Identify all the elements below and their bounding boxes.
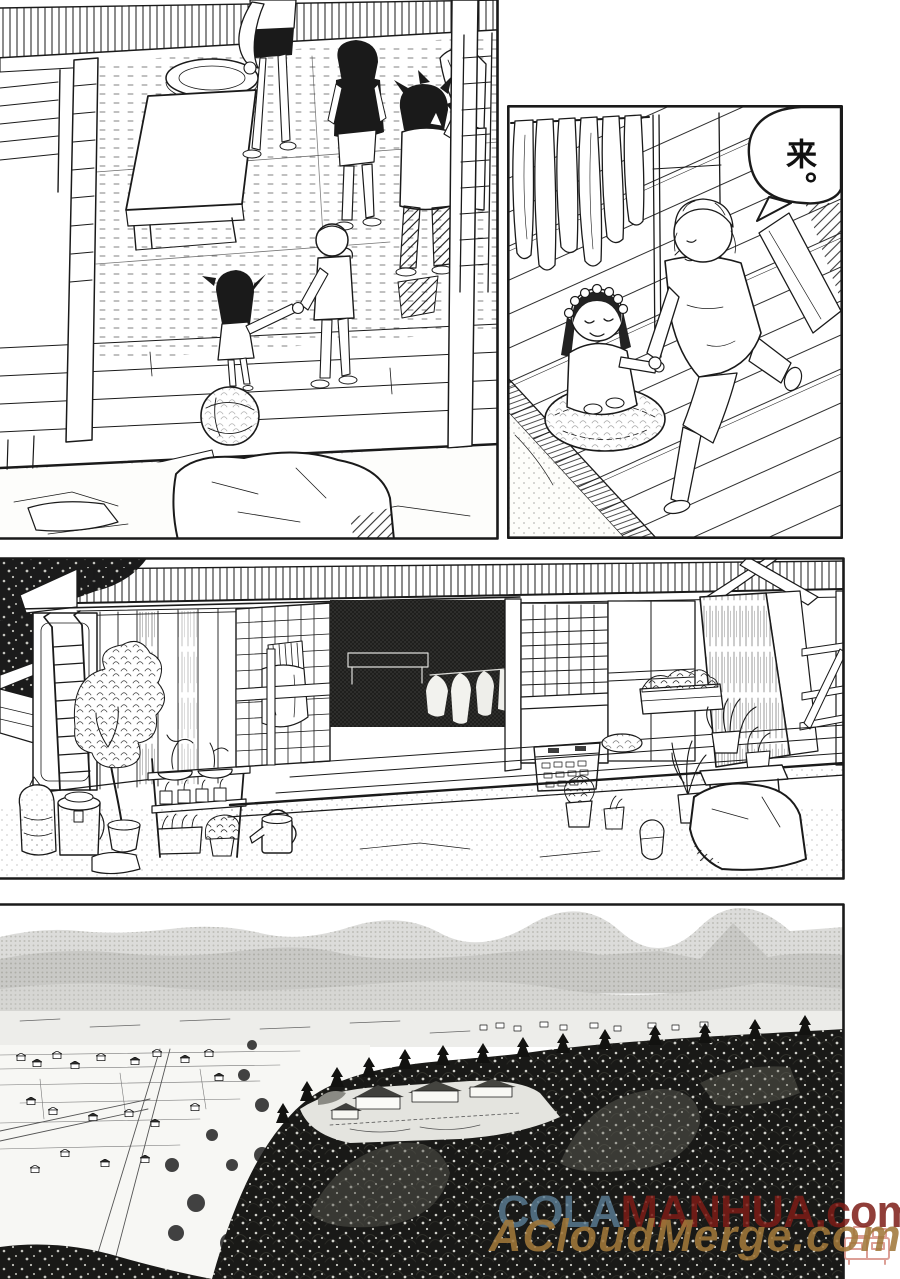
straw-ball	[201, 387, 259, 445]
speech-bubble-text: 来。	[779, 123, 821, 219]
dark-doorway	[330, 600, 510, 727]
shoji-window	[521, 603, 608, 763]
woven-tray	[602, 734, 642, 752]
dark-cloth-patch	[398, 276, 438, 318]
interior-post-ladder	[66, 58, 98, 442]
manga-page: 来。 COLAMANHUA.com ACloudMerge.com	[0, 0, 900, 1279]
doorway-post	[505, 599, 521, 771]
panel-3	[0, 557, 845, 880]
panel-1	[0, 0, 499, 540]
watermark-acloudmerge: ACloudMerge.com	[489, 1213, 900, 1258]
lattice-door	[236, 603, 330, 767]
large-rock	[173, 452, 394, 540]
